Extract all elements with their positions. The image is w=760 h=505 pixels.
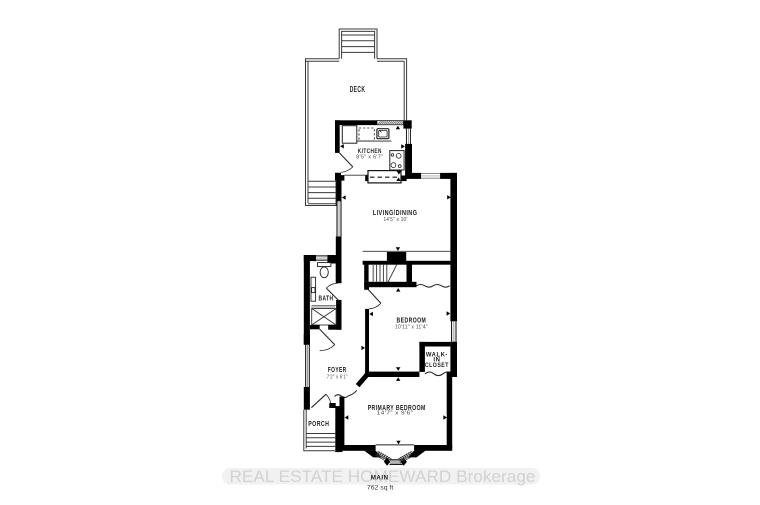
svg-text:FOYER: FOYER <box>328 365 347 374</box>
svg-text:CLOSET: CLOSET <box>425 362 449 369</box>
svg-text:BEDROOM: BEDROOM <box>397 315 427 324</box>
svg-text:14'7" x 9'6": 14'7" x 9'6" <box>377 411 414 417</box>
svg-text:LIVING/DINING: LIVING/DINING <box>373 208 418 217</box>
svg-text:BATH: BATH <box>319 293 334 302</box>
svg-text:8'5" x 6'7": 8'5" x 6'7" <box>356 155 383 161</box>
svg-text:10'11" x 11'4": 10'11" x 11'4" <box>395 324 428 330</box>
svg-text:DECK: DECK <box>350 85 366 94</box>
svg-text:7'2" x 6'1": 7'2" x 6'1" <box>327 374 348 380</box>
svg-text:762 sq ft: 762 sq ft <box>367 484 393 491</box>
svg-text:PORCH: PORCH <box>308 419 329 428</box>
svg-text:MAIN: MAIN <box>371 475 389 482</box>
svg-text:14'5" x 10': 14'5" x 10' <box>383 217 407 223</box>
